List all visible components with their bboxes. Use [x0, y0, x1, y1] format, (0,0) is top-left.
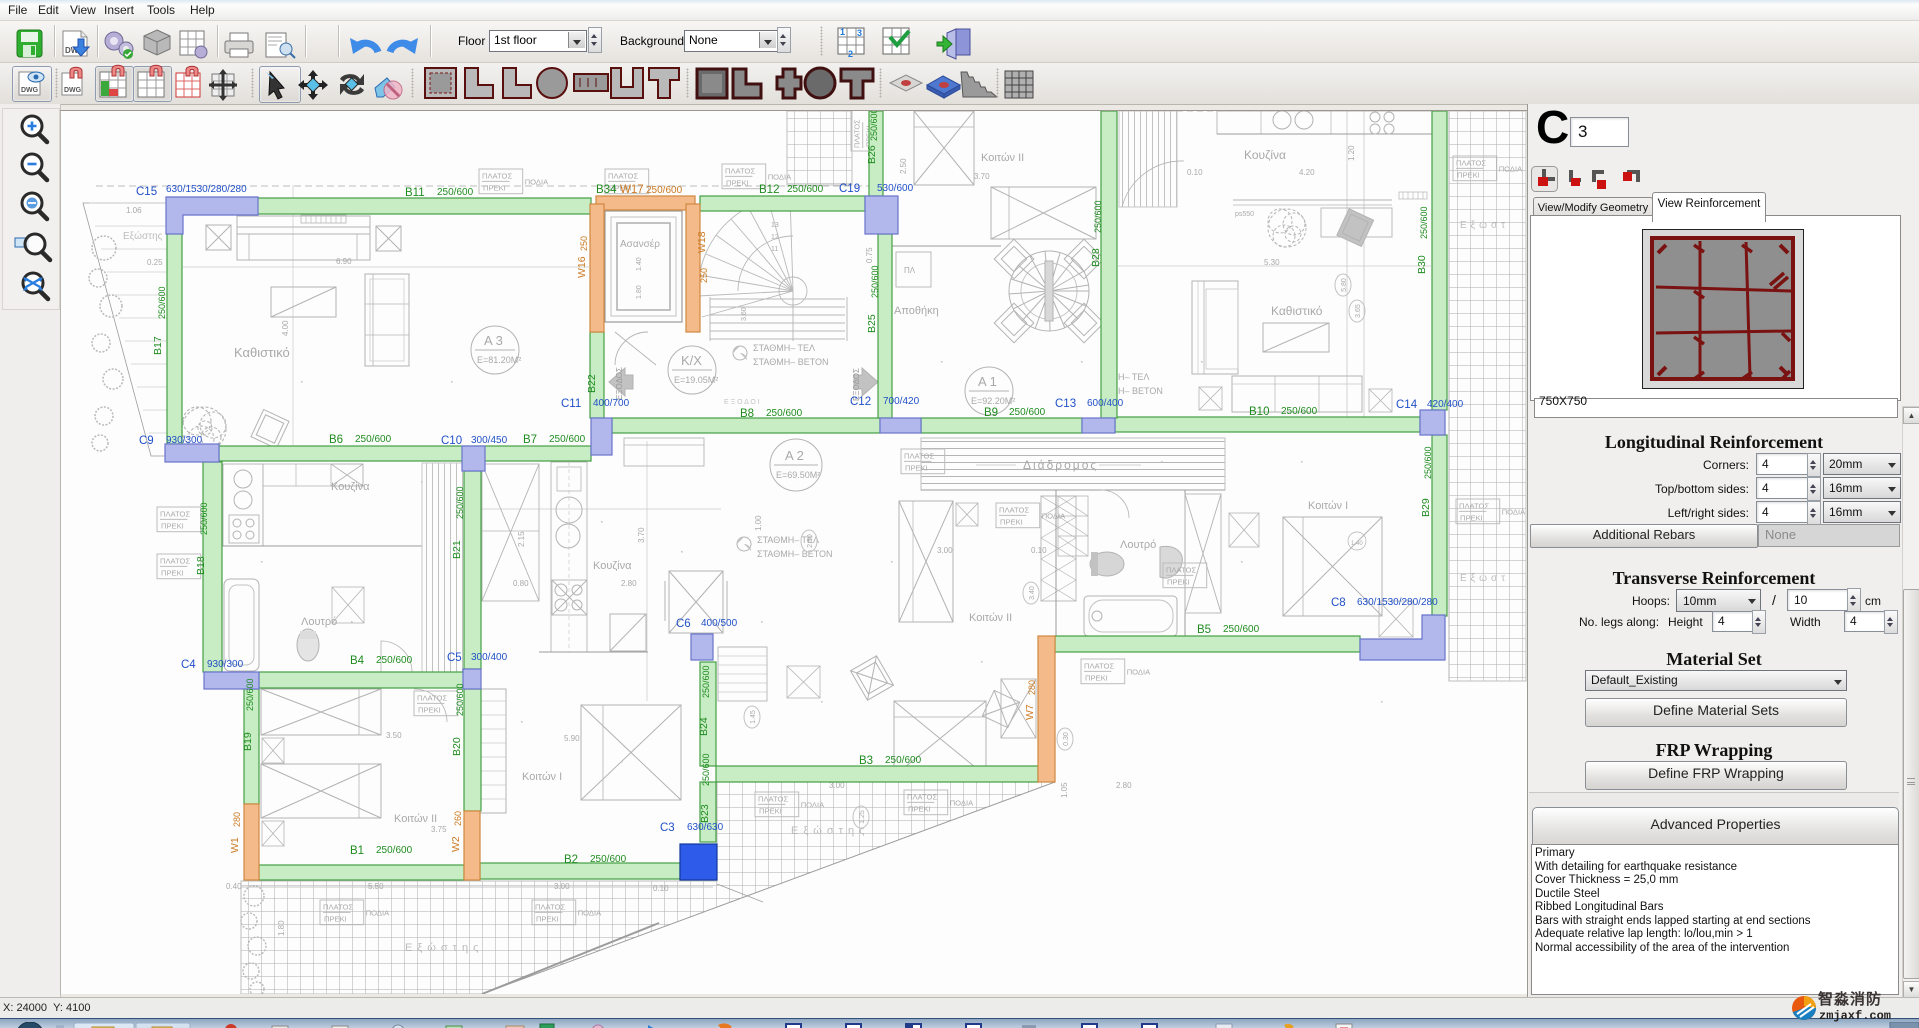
svg-text:0.30: 0.30 [1063, 732, 1070, 746]
svg-text:2.50: 2.50 [899, 158, 908, 174]
svg-text:Η– ΤΕΛ: Η– ΤΕΛ [1118, 372, 1149, 382]
svg-text:250/600: 250/600 [766, 408, 803, 419]
svg-text:ΠΟΔΙΑ: ΠΟΔΙΑ [768, 172, 792, 181]
svg-text:1.06: 1.06 [126, 206, 142, 215]
svg-text:250/600: 250/600 [376, 655, 413, 666]
svg-text:Ε Ξ Ο Δ Ο Ι: Ε Ξ Ο Δ Ο Ι [724, 399, 760, 406]
svg-text:Κοιτών II: Κοιτών II [981, 152, 1024, 164]
svg-text:ΠΡΕΚΙ: ΠΡΕΚΙ [905, 464, 928, 473]
svg-text:3.00: 3.00 [554, 882, 570, 891]
svg-text:3.70: 3.70 [974, 172, 990, 181]
svg-text:250/600: 250/600 [646, 185, 683, 196]
svg-text:Εξώστης: Εξώστης [405, 942, 483, 954]
svg-text:ΠΟΔΙΑ: ΠΟΔΙΑ [366, 908, 390, 917]
svg-text:250: 250 [579, 236, 589, 251]
svg-text:250/600: 250/600 [590, 854, 627, 865]
svg-text:Ασανσέρ: Ασανσέρ [620, 238, 660, 250]
svg-text:2.80: 2.80 [621, 579, 637, 588]
svg-text:4.20: 4.20 [1299, 168, 1315, 177]
svg-text:3.70: 3.70 [637, 527, 646, 543]
svg-text:300/450: 300/450 [471, 435, 508, 446]
svg-text:B23: B23 [699, 804, 711, 823]
svg-text:5.50: 5.50 [368, 882, 384, 891]
svg-text:1.80: 1.80 [636, 285, 643, 299]
svg-text:0.25: 0.25 [147, 258, 163, 267]
svg-text:ΠΡΕΚΙ: ΠΡΕΚΙ [1000, 518, 1023, 527]
svg-text:B10: B10 [1249, 406, 1269, 418]
svg-text:1: 1 [840, 27, 845, 37]
svg-text:B19: B19 [242, 732, 254, 751]
svg-text:ΠΟΔΙΑ: ΠΟΔΙΑ [1499, 164, 1523, 173]
svg-text:ΠΛΑΤΟΣ: ΠΛΑΤΟΣ [904, 451, 934, 460]
svg-text:4.00: 4.00 [281, 320, 290, 336]
svg-text:0.10: 0.10 [653, 884, 669, 893]
svg-text:Εξώστης: Εξώστης [123, 230, 163, 242]
svg-text:B26: B26 [866, 145, 878, 164]
svg-text:250/600: 250/600 [455, 683, 465, 716]
svg-text:Η– ΒΕΤΟΝ: Η– ΒΕΤΟΝ [1118, 386, 1163, 396]
svg-text:250/600: 250/600 [455, 486, 465, 519]
svg-text:250/600: 250/600 [701, 753, 711, 786]
svg-text:Κοιτών II: Κοιτών II [969, 612, 1012, 624]
svg-text:1.40: 1.40 [636, 257, 643, 271]
svg-text:ΠΡΕΚΙ: ΠΡΕΚΙ [726, 179, 749, 188]
svg-text:Ε=19.05Μ²: Ε=19.05Μ² [674, 375, 718, 385]
svg-text:B20: B20 [451, 737, 463, 756]
svg-text:11: 11 [771, 246, 778, 253]
svg-text:DWG: DWG [21, 87, 39, 94]
svg-text:0.10: 0.10 [1031, 546, 1047, 555]
svg-text:2.50: 2.50 [807, 534, 814, 548]
svg-text:5.90: 5.90 [564, 734, 580, 743]
svg-text:250/600: 250/600 [376, 845, 413, 856]
svg-text:B17: B17 [152, 336, 164, 355]
svg-text:ΠΛΑΤΟΣ: ΠΛΑΤΟΣ [323, 902, 353, 911]
svg-text:ΠΡΕΚΙ: ΠΡΕΚΙ [483, 184, 506, 193]
svg-text:B22: B22 [586, 374, 598, 393]
svg-text:Κ/Χ: Κ/Χ [681, 353, 702, 368]
svg-text:420/400: 420/400 [1427, 399, 1464, 410]
svg-text:250/600: 250/600 [1093, 200, 1103, 233]
svg-text:ΠΡΕΚΙ: ΠΡΕΚΙ [1167, 578, 1190, 587]
svg-text:250/600: 250/600 [157, 286, 167, 319]
svg-text:5.30: 5.30 [1264, 258, 1280, 267]
svg-text:B4: B4 [350, 655, 365, 667]
svg-text:ΠΛΑΤΟΣ: ΠΛΑΤΟΣ [160, 509, 190, 518]
svg-text:Εξώστ: Εξώστ [1460, 219, 1509, 231]
svg-text:0.40: 0.40 [226, 882, 242, 891]
svg-text:Ε=69.50Μ²: Ε=69.50Μ² [776, 470, 820, 480]
svg-text:B24: B24 [698, 717, 710, 736]
svg-text:ΠΡΕΚΙ: ΠΡΕΚΙ [1457, 171, 1480, 180]
svg-text:B12: B12 [759, 184, 779, 196]
svg-text:ΠΛΑΤΟΣ: ΠΛΑΤΟΣ [725, 166, 755, 175]
svg-text:600/400: 600/400 [1087, 398, 1124, 409]
svg-text:ΠΟΔΙΑ: ΠΟΔΙΑ [1042, 511, 1066, 520]
svg-text:W16: W16 [576, 256, 588, 278]
svg-text:C13: C13 [1055, 398, 1076, 410]
svg-text:B6: B6 [329, 434, 343, 446]
svg-text:C4: C4 [181, 659, 196, 671]
svg-text:ΠΛΑΤΟΣ: ΠΛΑΤΟΣ [999, 505, 1029, 514]
svg-text:1.40: 1.40 [1351, 541, 1363, 547]
svg-text:700/420: 700/420 [883, 396, 920, 407]
svg-text:ΠΡΕΚΙ: ΠΡΕΚΙ [1085, 674, 1108, 683]
svg-text:1.25: 1.25 [859, 810, 866, 824]
svg-text:ΠΟΔΙΑ: ΠΟΔΙΑ [1502, 507, 1526, 516]
svg-text:DWG: DWG [64, 87, 82, 94]
svg-text:ΠΡΕΚΙ: ΠΡΕΚΙ [536, 915, 559, 924]
svg-text:250/600: 250/600 [437, 187, 474, 198]
svg-text:2: 2 [848, 49, 853, 59]
svg-text:ΠΛΑΤΟΣ: ΠΛΑΤΟΣ [758, 794, 788, 803]
svg-text:5.80: 5.80 [1341, 278, 1348, 292]
svg-text:ΠΛΑΤΟΣ: ΠΛΑΤΟΣ [907, 792, 937, 801]
svg-text:250/600: 250/600 [199, 502, 209, 535]
svg-text:400/500: 400/500 [701, 618, 738, 629]
svg-text:12: 12 [771, 234, 779, 241]
svg-text:250/600: 250/600 [1423, 446, 1433, 479]
svg-text:Καθιστικό: Καθιστικό [234, 345, 290, 360]
svg-text:13: 13 [771, 222, 779, 229]
svg-text:W17: W17 [620, 184, 644, 196]
svg-text:ΣΤΑΘΜΗ– ΤΕΛ: ΣΤΑΘΜΗ– ΤΕΛ [753, 343, 815, 353]
svg-text:1.45: 1.45 [750, 710, 757, 724]
svg-text:Κοιτών I: Κοιτών I [522, 771, 562, 783]
svg-text:B29: B29 [1420, 498, 1432, 517]
svg-text:Κοιτών I: Κοιτών I [1308, 500, 1348, 512]
svg-text:C10: C10 [441, 435, 462, 447]
svg-text:W2: W2 [450, 836, 462, 852]
svg-text:ΠΡΕΚΙ: ΠΡΕΚΙ [161, 522, 184, 531]
svg-text:250/600: 250/600 [701, 665, 711, 698]
svg-text:C8: C8 [1331, 597, 1346, 609]
svg-text:250/600: 250/600 [870, 265, 880, 298]
svg-text:ΠΡΕΚΙ: ΠΡΕΚΙ [908, 805, 931, 814]
svg-text:260: 260 [453, 811, 463, 826]
svg-text:ΠΛΑΤΟΣ: ΠΛΑΤΟΣ [1459, 501, 1489, 510]
svg-text:Κοιτών II: Κοιτών II [394, 813, 437, 825]
svg-text:250/600: 250/600 [787, 184, 824, 195]
svg-text:250/600: 250/600 [885, 755, 922, 766]
svg-text:3.65: 3.65 [1355, 304, 1362, 318]
svg-text:ΠΛΑΤΟΣ: ΠΛΑΤΟΣ [535, 902, 565, 911]
svg-text:Α 3: Α 3 [484, 333, 503, 348]
svg-text:ΠΡΕΚΙ: ΠΡΕΚΙ [1460, 514, 1483, 523]
svg-text:ΕΞΟΔΟΣ: ΕΞΟΔΟΣ [615, 367, 624, 400]
svg-text:B18: B18 [195, 556, 207, 575]
svg-text:ΠΛΑΤΟΣ: ΠΛΑΤΟΣ [160, 556, 190, 565]
svg-text:C12: C12 [850, 396, 871, 408]
svg-text:ΠΡΕΚΙ: ΠΡΕΚΙ [324, 915, 347, 924]
svg-text:ΠΡΕΚΙ: ΠΡΕΚΙ [759, 807, 782, 816]
svg-text:250/600: 250/600 [355, 434, 392, 445]
svg-text:B11: B11 [405, 187, 425, 199]
svg-text:ΠΛ: ΠΛ [904, 266, 916, 275]
svg-text:ΠΛΑΤΟΣ: ΠΛΑΤΟΣ [1084, 661, 1114, 670]
svg-text:ΠΛΑΤΟΣ: ΠΛΑΤΟΣ [1166, 565, 1196, 574]
svg-text:C6: C6 [676, 618, 691, 630]
svg-text:0.75: 0.75 [865, 247, 874, 263]
svg-text:250/600: 250/600 [1419, 206, 1429, 239]
svg-text:W18: W18 [696, 231, 708, 253]
svg-text:B8: B8 [740, 408, 754, 420]
svg-text:ΣΤΑΘΜΗ– ΒΕΤΟΝ: ΣΤΑΘΜΗ– ΒΕΤΟΝ [753, 357, 829, 367]
svg-text:Κουζίνα: Κουζίνα [331, 481, 370, 493]
svg-text:智淼消防: 智淼消防 [1818, 990, 1882, 1008]
svg-text:Διάδρομος: Διάδρομος [1023, 458, 1098, 472]
svg-text:Εξώστης: Εξώστης [791, 825, 869, 837]
svg-text:Καθιστικό: Καθιστικό [1271, 304, 1323, 318]
svg-text:Λουτρό: Λουτρό [1120, 539, 1156, 551]
svg-text:B1: B1 [350, 845, 364, 857]
svg-text:B30: B30 [1416, 255, 1428, 274]
svg-text:W1: W1 [229, 837, 241, 853]
svg-text:400/700: 400/700 [593, 398, 630, 409]
svg-text:B3: B3 [859, 755, 873, 767]
svg-text:250/600: 250/600 [1009, 407, 1046, 418]
svg-text:Εξώστ: Εξώστ [1460, 572, 1509, 584]
svg-text:ΠΟΔΙΑ: ΠΟΔΙΑ [1127, 667, 1151, 676]
svg-text:280: 280 [232, 812, 242, 827]
svg-text:0.80: 0.80 [513, 579, 529, 588]
svg-text:ΠΛΑΤΟΣ: ΠΛΑΤΟΣ [853, 119, 862, 148]
svg-text:0.10: 0.10 [1187, 168, 1203, 177]
svg-text:Α 1: Α 1 [978, 374, 997, 389]
svg-text:1.20: 1.20 [1347, 145, 1356, 161]
svg-text:ΠΛΑΤΟΣ: ΠΛΑΤΟΣ [417, 693, 447, 702]
svg-text:2.15: 2.15 [517, 531, 526, 547]
svg-text:Αποθήκη: Αποθήκη [894, 305, 939, 317]
svg-text:3.75: 3.75 [431, 825, 447, 834]
svg-text:Ε=92.20Μ²: Ε=92.20Μ² [971, 396, 1015, 406]
svg-text:B2: B2 [564, 854, 578, 866]
svg-text:Λουτρό: Λουτρό [301, 616, 337, 628]
svg-text:250/600: 250/600 [1281, 406, 1318, 417]
svg-text:ΠΛΑΤΟΣ: ΠΛΑΤΟΣ [482, 171, 512, 180]
svg-text:250: 250 [699, 268, 709, 283]
svg-text:B9: B9 [984, 407, 998, 419]
svg-text:C11: C11 [561, 398, 581, 410]
svg-text:B25: B25 [866, 314, 878, 333]
svg-text:C14: C14 [1396, 399, 1418, 411]
svg-text:C19: C19 [839, 183, 860, 195]
svg-text:ΠΛΑΤΟΣ: ΠΛΑΤΟΣ [608, 171, 638, 180]
svg-text:250/600: 250/600 [1223, 624, 1260, 635]
svg-text:Α 2: Α 2 [785, 448, 804, 463]
svg-text:1.05: 1.05 [1060, 782, 1069, 798]
svg-text:ΠΟΔΙΑ: ΠΟΔΙΑ [578, 908, 602, 917]
svg-text:ΠΛΑΤΟΣ: ΠΛΑΤΟΣ [1456, 158, 1486, 167]
svg-text:280: 280 [1027, 680, 1037, 695]
svg-text:ΠΡΕΚΙ: ΠΡΕΚΙ [418, 706, 441, 715]
svg-text:C9: C9 [139, 435, 154, 447]
svg-text:W7: W7 [1024, 704, 1036, 720]
svg-text:zmjaxf.com: zmjaxf.com [1819, 1009, 1891, 1023]
svg-text:Κουζίνα: Κουζίνα [1244, 148, 1286, 162]
svg-text:C15: C15 [136, 186, 157, 198]
svg-text:ΠΡΕΚΙ: ΠΡΕΚΙ [161, 569, 184, 578]
svg-text:250/600: 250/600 [869, 111, 879, 141]
svg-text:B34: B34 [596, 184, 617, 196]
svg-text:ΠΟΔΙΑ: ΠΟΔΙΑ [525, 177, 549, 186]
svg-text:1.00: 1.00 [754, 515, 763, 531]
svg-text:C3: C3 [660, 822, 675, 834]
svg-text:3.50: 3.50 [386, 731, 402, 740]
svg-text:Ε=81.20Μ²: Ε=81.20Μ² [477, 355, 521, 365]
svg-text:930/300: 930/300 [207, 659, 244, 670]
svg-text:B5: B5 [1197, 624, 1211, 636]
svg-text:2.80: 2.80 [1116, 781, 1132, 790]
svg-text:Κουζίνα: Κουζίνα [593, 560, 632, 572]
svg-text:ΣΤΑΘΜΗ– ΒΕΤΟΝ: ΣΤΑΘΜΗ– ΒΕΤΟΝ [757, 549, 833, 559]
svg-text:300/400: 300/400 [471, 652, 508, 663]
svg-text:B28: B28 [1090, 248, 1102, 267]
svg-text:C5: C5 [447, 652, 462, 664]
svg-text:250/600: 250/600 [245, 678, 255, 711]
svg-text:630/1530/280/280: 630/1530/280/280 [1357, 597, 1438, 608]
svg-text:6.90: 6.90 [336, 257, 352, 266]
svg-text:ps550: ps550 [1235, 211, 1254, 218]
svg-text:250/600: 250/600 [549, 434, 586, 445]
svg-text:630/1530/280/280: 630/1530/280/280 [166, 184, 247, 195]
svg-text:530/600: 530/600 [877, 183, 914, 194]
svg-text:B7: B7 [523, 434, 537, 446]
svg-text:1.80: 1.80 [277, 920, 286, 936]
svg-text:B21: B21 [451, 540, 463, 559]
svg-text:3: 3 [857, 28, 862, 38]
svg-text:ΠΟΔΙΑ: ΠΟΔΙΑ [950, 798, 974, 807]
svg-text:930/300: 930/300 [166, 435, 203, 446]
svg-text:3.40: 3.40 [1029, 586, 1036, 600]
svg-text:3.60: 3.60 [741, 307, 748, 321]
svg-text:ΠΟΔΙΑ: ΠΟΔΙΑ [801, 800, 825, 809]
svg-text:3.00: 3.00 [937, 546, 953, 555]
